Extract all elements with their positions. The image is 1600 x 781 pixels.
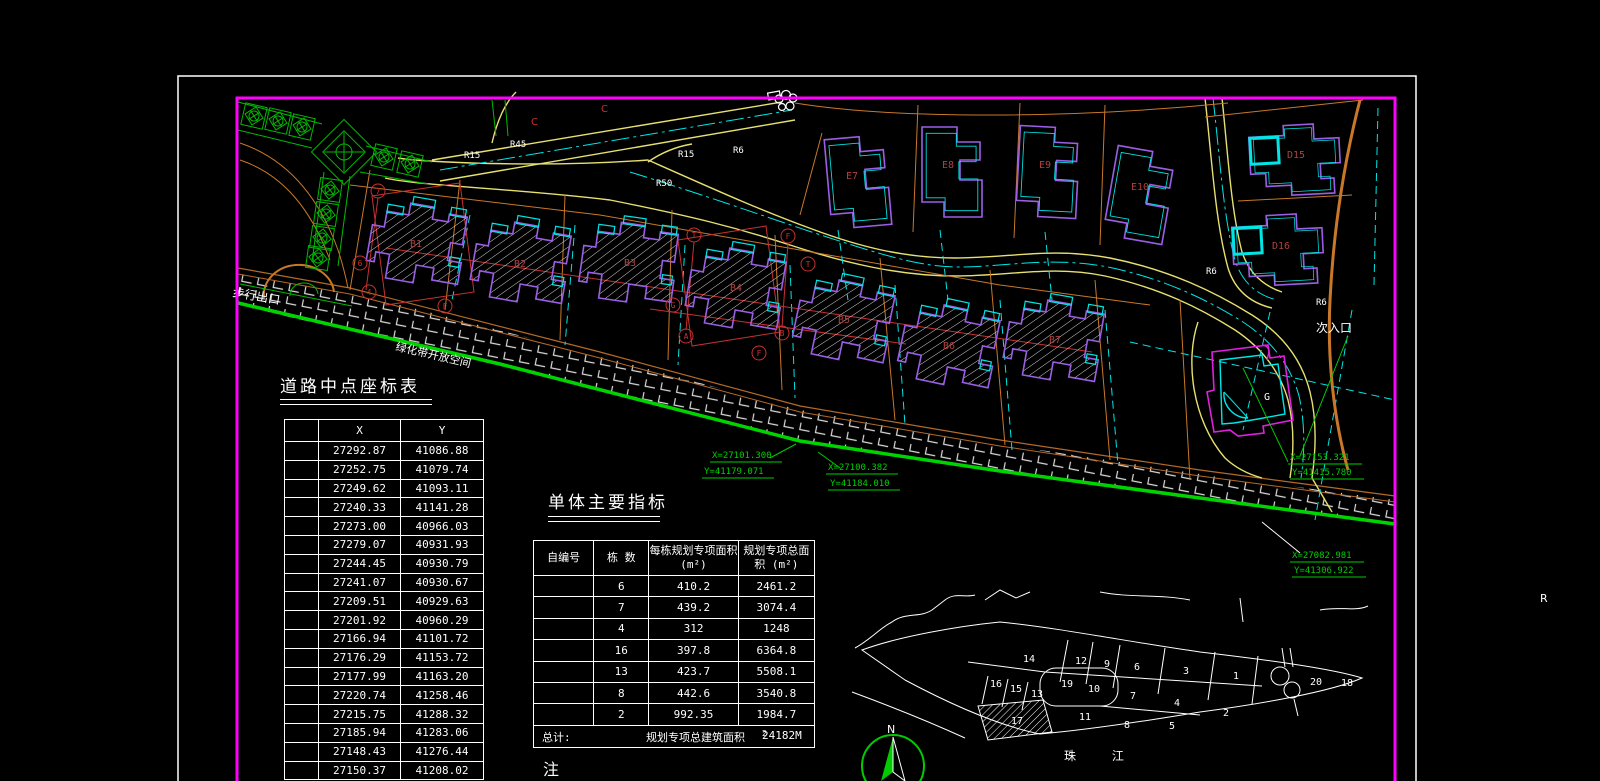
building-label-g: G: [1264, 392, 1270, 403]
unit-indicator-table: 自编号 栋 数 每栋规划专项面积 (m²) 规划专项总面积 (m²) 6410.…: [533, 540, 815, 726]
coord-table-body: 27292.8741086.8827252.7541079.7427249.62…: [285, 442, 484, 780]
river-label: 珠 江: [1064, 749, 1140, 763]
keymap-parcel-number: 6: [1134, 662, 1140, 673]
keymap-parcel-number: 18: [1341, 678, 1353, 689]
grid-bubble-label: 7: [376, 187, 381, 196]
road-radius-label: R50: [656, 179, 672, 189]
coord-header-x: X: [319, 420, 401, 442]
grid-bubble-label: 6: [358, 259, 363, 268]
grid-bubble-label: A: [684, 332, 689, 341]
coord-row: 27252.7541079.74: [285, 460, 484, 479]
coord-row: 27241.0740930.67: [285, 573, 484, 592]
cad-drawing-canvas: X=27101.300 Y=41179.071 X=27100.382 Y=41…: [0, 0, 1600, 781]
ind-header-total-area: 规划专项总面积 (m²): [738, 541, 814, 576]
coord-row: 27209.5140929.63: [285, 592, 484, 611]
footer-desc: 规划专项总建筑面积: [646, 729, 745, 745]
building-label-e7: E7: [846, 171, 858, 182]
coord-row: 27244.4540930.79: [285, 554, 484, 573]
keymap-parcel-number: 9: [1104, 659, 1110, 670]
svg-text:Y=41415.780: Y=41415.780: [1292, 468, 1352, 478]
keymap-parcel-number: 19: [1061, 679, 1073, 690]
keymap-parcel-number: 17: [1011, 716, 1023, 727]
footer-value: 24182M2: [762, 729, 767, 744]
coord-title-underline: [280, 399, 432, 405]
indicator-row: 43121248: [534, 618, 815, 639]
building-g-clubhouse: [1207, 345, 1293, 436]
secondary-entrance-label: 次入口: [1316, 321, 1352, 335]
coord-header-blank: [285, 420, 319, 442]
road-radius-label: R15: [678, 150, 694, 160]
coord-row: 27201.9240960.29: [285, 611, 484, 630]
keymap-parcel-number: 15: [1010, 684, 1022, 695]
building-label-b1: B1: [410, 239, 422, 250]
coord-row: 27215.7541288.32: [285, 705, 484, 724]
building-label-b6: B6: [943, 341, 955, 352]
keymap-parcel-number: 1: [1233, 671, 1239, 682]
keymap-parcel-number: 10: [1088, 684, 1100, 695]
footer-total-label: 总计:: [542, 729, 571, 745]
indicator-title-underline: [548, 516, 660, 522]
indicator-row: 6410.22461.2: [534, 576, 815, 597]
svg-text:X=27100.382: X=27100.382: [828, 463, 888, 473]
road-radius-label: R6: [1206, 267, 1217, 277]
indicator-row: 13423.75508.1: [534, 661, 815, 682]
building-label-b3: B3: [624, 258, 636, 269]
coord-row: 27166.9441101.72: [285, 629, 484, 648]
coord-row: 27279.0740931.93: [285, 535, 484, 554]
indicator-row: 16397.86364.8: [534, 640, 815, 661]
keymap-parcel-number: 12: [1075, 656, 1087, 667]
road-radius-label: R15: [464, 151, 480, 161]
coord-note-4: X=27082.981 Y=41306.922: [1262, 522, 1366, 577]
coord-row: 27148.4341276.44: [285, 742, 484, 761]
c-mark-2: C: [601, 104, 608, 115]
building-label-b7: B7: [1049, 335, 1061, 346]
keymap-parcel-number: 20: [1310, 677, 1322, 688]
coord-row: 27176.2941153.72: [285, 648, 484, 667]
keymap-parcel-number: 7: [1130, 691, 1136, 702]
coord-note-3: X=27153.321 Y=41415.780: [1243, 336, 1364, 479]
entrance-symbol: [768, 91, 797, 111]
indicator-table-title: 单体主要指标: [548, 488, 668, 513]
keymap-parcel-number: 2: [1223, 708, 1229, 719]
indicator-header-row: 自编号 栋 数 每栋规划专项面积 (m²) 规划专项总面积 (m²): [534, 541, 815, 576]
ind-header-id: 自编号: [534, 541, 594, 576]
indicator-row: 7439.23074.4: [534, 597, 815, 618]
north-label: N: [887, 723, 895, 736]
keymap-parcel-number: 8: [1124, 720, 1130, 731]
svg-text:Y=41306.922: Y=41306.922: [1294, 566, 1354, 576]
coord-row: 27273.0040966.03: [285, 517, 484, 536]
grid-bubble-label: T: [806, 260, 811, 269]
building-label-e9: E9: [1039, 160, 1051, 171]
keymap-parcel-number: 4: [1174, 698, 1180, 709]
grid-bubble-label: 4: [367, 288, 372, 297]
buildings-d: [1231, 123, 1342, 288]
svg-text:Y=41179.071: Y=41179.071: [704, 467, 764, 477]
building-label-b5: B5: [838, 315, 850, 326]
svg-text:X=27082.981: X=27082.981: [1292, 551, 1352, 561]
coord-note-2: X=27100.382 Y=41184.010: [818, 452, 900, 490]
ind-header-per-area: 每栋规划专项面积 (m²): [649, 541, 738, 576]
indicator-table-footer: 总计: 规划专项总建筑面积 24182M2: [533, 726, 815, 748]
grid-bubble-label: F: [786, 232, 791, 241]
key-map: 1412963120181615131910742171185 珠 江: [852, 590, 1368, 763]
grid-bubble-label: F: [757, 349, 762, 358]
keymap-parcel-number: 13: [1031, 689, 1043, 700]
indicator-row: 8442.63540.8: [534, 682, 815, 703]
coord-row: 27292.8741086.88: [285, 442, 484, 461]
grid-bubble-label: B: [780, 329, 785, 338]
coord-row: 27185.9441283.06: [285, 723, 484, 742]
coord-row: 27220.7441258.46: [285, 686, 484, 705]
building-label-b4: B4: [730, 283, 742, 294]
svg-text:X=27153.321: X=27153.321: [1290, 453, 1350, 463]
coord-row: 27177.9941163.20: [285, 667, 484, 686]
keymap-parcel-number: 5: [1169, 721, 1175, 732]
keymap-parcel-number: 14: [1023, 654, 1035, 665]
c-mark-1: C: [531, 117, 538, 128]
building-label-e10: E10: [1131, 182, 1149, 193]
coord-row: 27150.3741208.02: [285, 761, 484, 780]
keymap-parcel-number: 16: [990, 679, 1002, 690]
indicator-row: 2992.351984.7: [534, 704, 815, 725]
coord-header-y: Y: [401, 420, 484, 442]
stray-r-char: R: [1540, 592, 1548, 605]
building-label-e8: E8: [942, 160, 954, 171]
coord-row: 27249.6241093.11: [285, 479, 484, 498]
buildings-e-row: [824, 125, 1177, 244]
keymap-parcel-number: 11: [1079, 712, 1091, 723]
keymap-parcel-number: 3: [1183, 666, 1189, 677]
grid-bubble-label: F: [443, 302, 448, 311]
ind-header-count: 栋 数: [594, 541, 649, 576]
svg-text:X=27101.300: X=27101.300: [712, 451, 772, 461]
coord-header-row: X Y: [285, 420, 484, 442]
grid-bubble-label: T: [692, 231, 697, 240]
north-arrow: N: [862, 723, 924, 781]
building-label-d16: D16: [1272, 241, 1290, 252]
road-radius-label: R45: [510, 140, 526, 150]
coord-row: 27240.3341141.28: [285, 498, 484, 517]
grid-bubble-label: G: [671, 301, 676, 310]
note-label: 注: [543, 756, 559, 780]
coord-table-title: 道路中点座标表: [280, 372, 420, 397]
indicator-table-body: 6410.22461.27439.23074.44312124816397.86…: [534, 576, 815, 726]
coord-note-1: X=27101.300 Y=41179.071: [702, 444, 796, 478]
road-radius-label: R6: [1316, 298, 1327, 308]
building-label-b2: B2: [514, 259, 526, 270]
svg-text:Y=41184.010: Y=41184.010: [830, 479, 890, 489]
road-radius-labels: R45R15R50R6R15R6R6: [464, 140, 1327, 308]
road-radius-label: R6: [733, 146, 744, 156]
building-label-d15: D15: [1287, 150, 1305, 161]
road-midpoint-coord-table: X Y 27292.8741086.8827252.7541079.742724…: [284, 419, 484, 780]
